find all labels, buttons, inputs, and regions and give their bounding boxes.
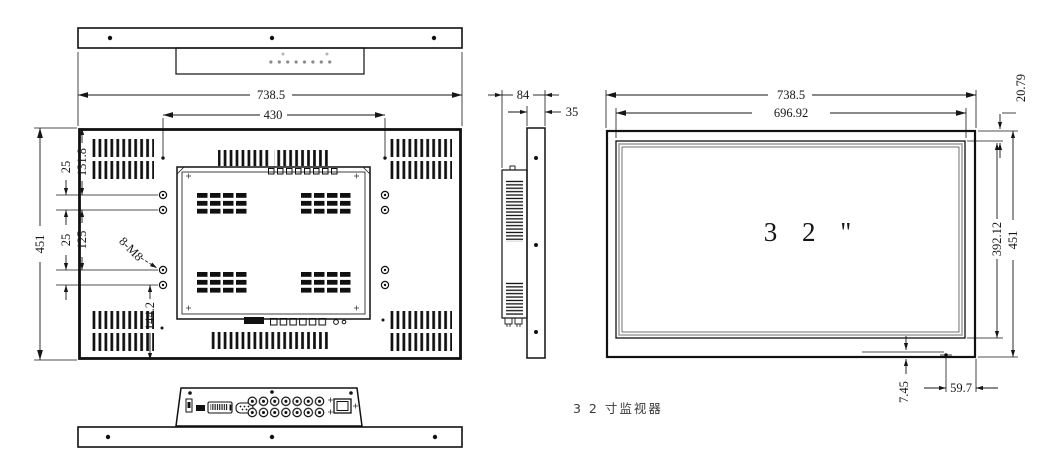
- side-vents: [506, 282, 523, 316]
- technical-drawing-page: 738.5 430 451 131.8 25 125 25 144.2 8-M8…: [0, 0, 1055, 459]
- screw-dot: [106, 435, 110, 439]
- screw-dot: [432, 36, 436, 40]
- side-view: [502, 128, 545, 358]
- bottom-view: [78, 388, 462, 447]
- side-bottom-connector: [505, 318, 512, 324]
- screw-dot: [433, 435, 437, 439]
- dim-screen-height: 392.12: [990, 222, 1004, 256]
- indicator-dot: [326, 53, 329, 56]
- panel-screw-marks: [328, 398, 358, 415]
- drawing-caption: 3 2 寸监视器: [573, 401, 663, 416]
- screw-dot: [534, 330, 538, 334]
- dim-front-height: 451: [1006, 231, 1020, 250]
- dim-top-bezel: 20.79: [1014, 74, 1028, 102]
- dim-hole-to-bottom: 144.2: [143, 302, 157, 330]
- chassis-vent-slots: [301, 193, 351, 214]
- vesa-mount-holes: [159, 156, 388, 329]
- dim-button-right-offset: 59.7: [950, 381, 972, 395]
- chassis-vent-slots: [301, 272, 351, 293]
- dim-mount-width: 430: [264, 108, 283, 122]
- dim-screen-width: 696.92: [774, 106, 808, 120]
- chassis-top-connectors: [268, 168, 340, 175]
- dim-top-to-hole: 131.8: [75, 148, 89, 176]
- chassis-vent-slots: [197, 272, 247, 293]
- side-vents: [506, 180, 523, 242]
- screw-dot: [270, 36, 274, 40]
- screen-size-label: 3 2 ": [764, 217, 861, 247]
- rear-chassis-plate: [177, 167, 370, 326]
- top-view-button-row: [269, 60, 335, 66]
- mini-port[interactable]: [196, 405, 205, 411]
- bnc-connector-grid[interactable]: [247, 396, 325, 418]
- side-bottom-connector: [515, 318, 522, 324]
- drawing-canvas: 738.5 430 451 131.8 25 125 25 144.2 8-M8…: [0, 0, 1055, 459]
- dim-mount-height: 125: [75, 231, 89, 250]
- dim-front-width: 738.5: [777, 88, 805, 102]
- dim-rear-width: 738.5: [257, 88, 285, 102]
- chassis-bottom-connector: [244, 317, 264, 324]
- chassis-bottom-connectors: [270, 318, 328, 326]
- dim-front-depth: 35: [566, 105, 579, 119]
- dim-hole-gap-bottom: 25: [59, 234, 73, 247]
- screw-dot: [270, 435, 274, 439]
- chassis-vent-slots: [197, 193, 247, 214]
- screw-dot: [534, 156, 538, 160]
- dim-depth-total: 84: [517, 88, 530, 102]
- dim-button-bottom-offset: 7.45: [897, 381, 911, 403]
- indicator-dot: [282, 53, 285, 56]
- screw-dot: [188, 391, 192, 395]
- chassis-jack: [342, 320, 346, 324]
- chassis-jack: [334, 320, 339, 325]
- front-view: 3 2 ": [607, 131, 975, 357]
- top-view: [78, 28, 462, 74]
- label-mount-holes: 8-M8: [116, 234, 146, 264]
- dim-rear-height: 451: [33, 235, 47, 254]
- screw-dot: [270, 390, 274, 394]
- screw-dot: [108, 36, 112, 40]
- screw-dot: [534, 243, 538, 247]
- dim-hole-gap-top: 25: [59, 161, 73, 174]
- screw-dot: [349, 391, 353, 395]
